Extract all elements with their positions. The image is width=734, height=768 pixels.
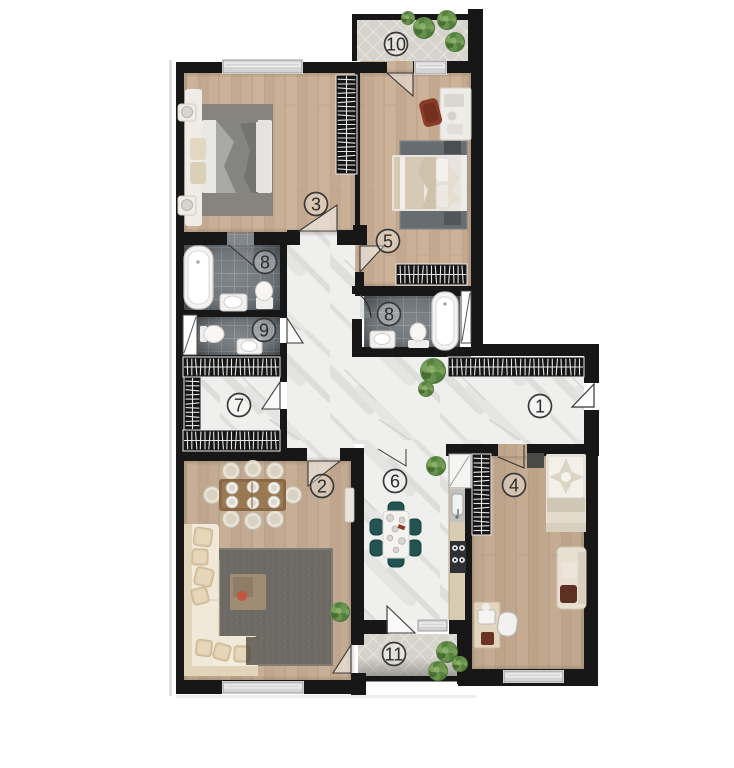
- svg-text:8: 8: [384, 304, 394, 324]
- svg-text:1: 1: [535, 396, 545, 416]
- svg-text:2: 2: [317, 476, 327, 496]
- svg-text:5: 5: [383, 231, 393, 251]
- svg-text:6: 6: [390, 471, 400, 491]
- svg-text:9: 9: [259, 320, 269, 340]
- svg-text:4: 4: [509, 475, 519, 495]
- svg-text:3: 3: [311, 194, 321, 214]
- svg-text:11: 11: [385, 644, 404, 664]
- svg-text:10: 10: [386, 34, 406, 54]
- svg-text:8: 8: [260, 252, 270, 272]
- svg-text:7: 7: [234, 395, 244, 415]
